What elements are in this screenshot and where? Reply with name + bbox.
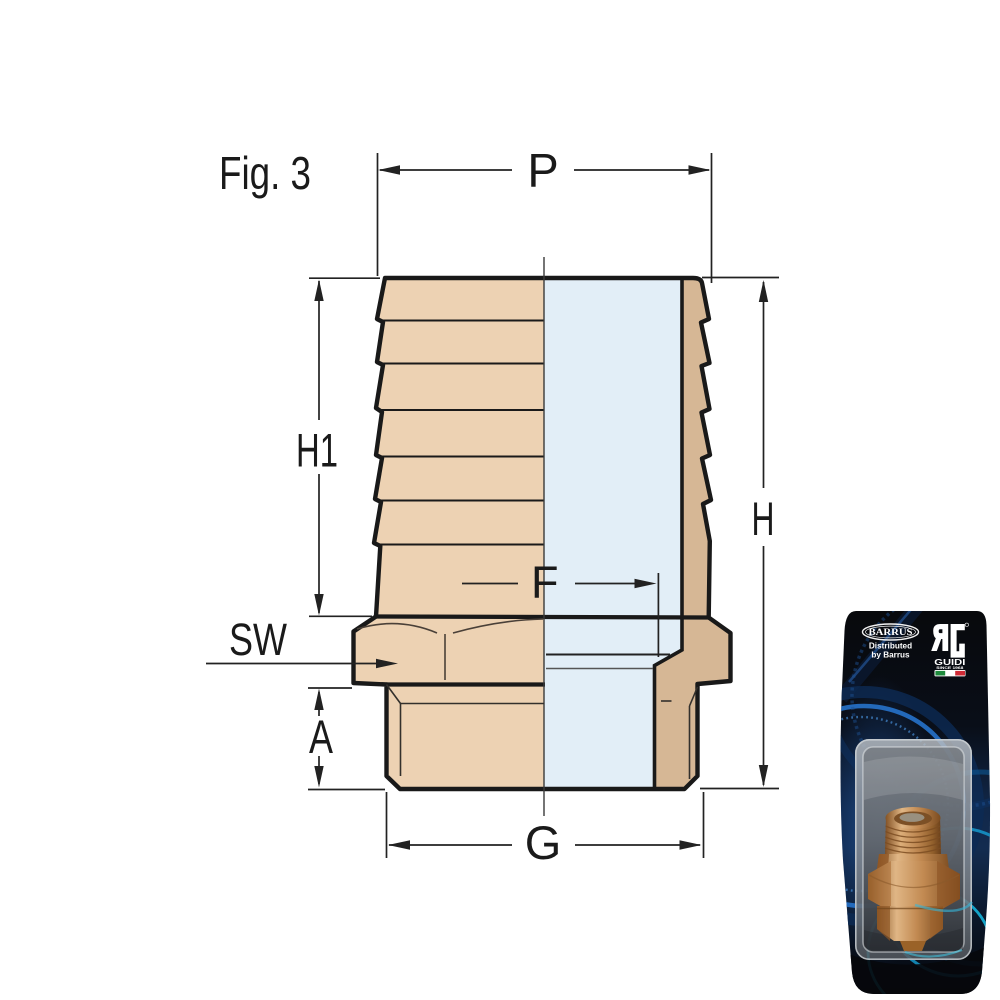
svg-text:SW: SW (229, 614, 287, 665)
svg-text:Fig. 3: Fig. 3 (219, 147, 311, 199)
svg-text:by Barrus: by Barrus (871, 651, 910, 660)
svg-text:F: F (531, 557, 559, 608)
svg-text:A: A (309, 710, 333, 763)
svg-text:H1: H1 (296, 424, 338, 477)
svg-text:Distributed: Distributed (869, 642, 912, 651)
svg-text:BARRUS: BARRUS (869, 627, 913, 637)
svg-text:SINCE 1968: SINCE 1968 (936, 666, 963, 670)
svg-text:H: H (752, 492, 775, 545)
svg-text:P: P (527, 144, 558, 197)
svg-text:G: G (525, 816, 562, 869)
